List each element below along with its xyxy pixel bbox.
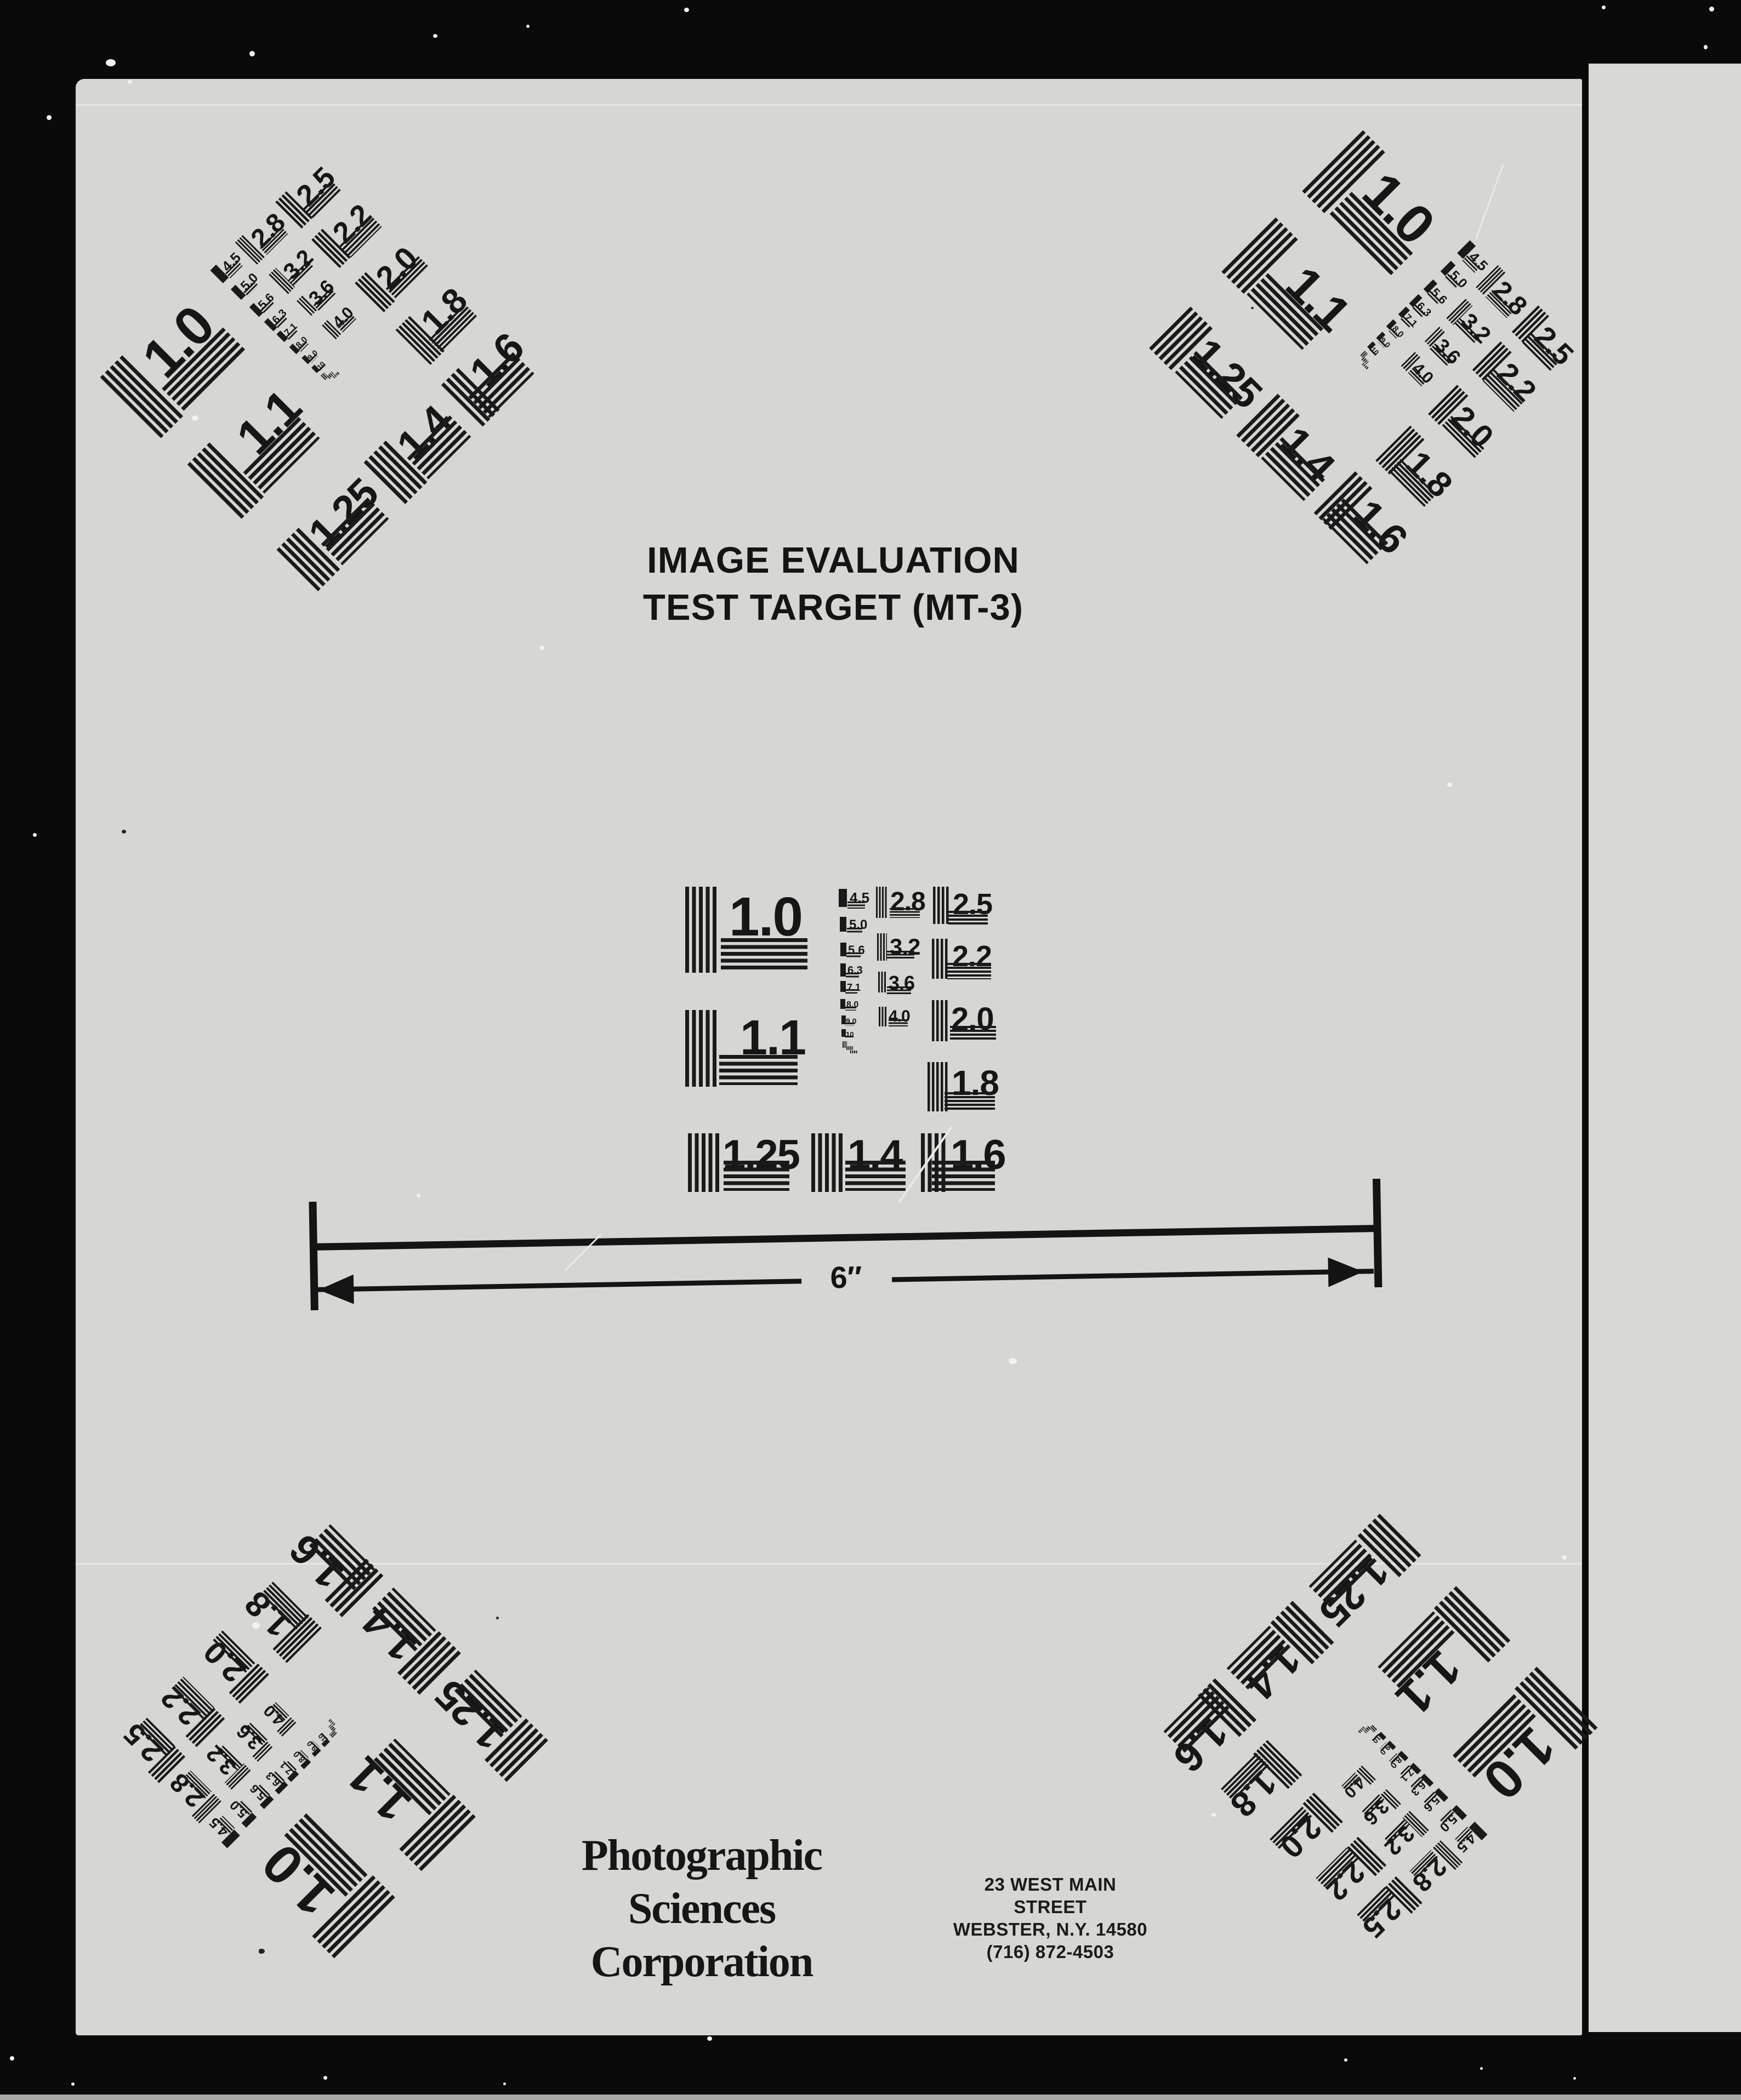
bar-pattern-horizontal — [847, 928, 862, 934]
test-target-center: 1.0 1.1 1.25 1.4 1.6 2.5 2.2 2.0 1.8 2.8… — [685, 885, 998, 1192]
company-name: Photographic Sciences Corporation — [559, 1829, 844, 1989]
scan-speck — [503, 2082, 506, 2085]
address-line-2: WEBSTER, N.Y. 14580 — [949, 1918, 1151, 1941]
scanner-edge — [0, 2095, 1741, 2100]
bar-pattern-block — [846, 1046, 853, 1050]
scale-top-line — [317, 1225, 1375, 1251]
scan-speck — [1211, 1813, 1216, 1817]
title-line-1: IMAGE EVALUATION — [630, 537, 1036, 584]
bar-pattern-vertical — [933, 887, 949, 924]
bar-pattern-horizontal — [845, 1007, 856, 1011]
scan-speck — [1009, 1358, 1017, 1364]
scan-speck — [684, 8, 689, 12]
arrowhead-right-icon — [1328, 1257, 1363, 1287]
dimension-line-right — [892, 1269, 1374, 1282]
bar-pattern-vertical — [685, 887, 719, 973]
scan-speck — [1480, 2067, 1483, 2070]
bar-pattern-horizontal — [889, 1019, 908, 1026]
bar-pattern-horizontal — [721, 938, 807, 971]
scan-speck — [33, 833, 37, 837]
scan-speck — [1447, 783, 1452, 787]
scanned-page: { "document": { "title_line1": "IMAGE EV… — [0, 0, 1741, 2100]
bar-pattern-vertical — [932, 1000, 949, 1041]
scan-speck — [252, 1622, 260, 1629]
scan-speck — [526, 25, 530, 28]
bar-pattern-horizontal — [846, 952, 861, 958]
scan-speck — [1573, 2077, 1576, 2080]
scan-speck — [106, 59, 116, 66]
scan-speck — [71, 2082, 75, 2086]
company-line-3: Corporation — [559, 1936, 844, 1989]
bar-pattern-horizontal — [948, 911, 988, 925]
company-line-2: Sciences — [559, 1882, 844, 1936]
scan-speck — [1562, 1555, 1567, 1560]
scan-speck — [259, 1949, 265, 1954]
bar-pattern-vertical — [685, 1010, 718, 1087]
scan-speck — [496, 1617, 499, 1619]
bar-pattern-horizontal — [719, 1055, 798, 1085]
scale-end-tick-left — [309, 1202, 318, 1310]
bar-pattern-horizontal — [724, 1161, 789, 1191]
scan-speck — [433, 34, 437, 38]
bar-pattern-block — [840, 917, 846, 932]
bar-pattern-horizontal — [945, 1092, 995, 1111]
scan-speck — [417, 1194, 420, 1197]
company-line-1: Photographic — [559, 1829, 844, 1882]
resolution-label: 1.0 — [729, 889, 802, 944]
bar-pattern-horizontal — [887, 986, 911, 995]
bar-pattern-block — [850, 1051, 858, 1053]
bar-pattern-horizontal — [947, 963, 991, 979]
title-line-2: TEST TARGET (MT-3) — [630, 584, 1036, 631]
bar-pattern-horizontal — [887, 951, 914, 960]
scan-speck — [1602, 5, 1606, 9]
dimension-line-left — [317, 1279, 801, 1292]
scan-speck — [707, 2036, 712, 2041]
bar-pattern-block — [839, 889, 847, 907]
bar-pattern-horizontal — [845, 1023, 855, 1026]
scale-bar: 6″ — [306, 1179, 1383, 1315]
bar-pattern-vertical — [876, 887, 887, 918]
scan-speck — [1344, 2058, 1347, 2062]
bar-pattern-horizontal — [890, 908, 920, 918]
bar-pattern-block — [840, 943, 846, 956]
scan-speck — [323, 2076, 327, 2080]
scan-speck — [128, 80, 132, 84]
address-line-3: (716) 872-4503 — [949, 1941, 1151, 1963]
scan-speck — [249, 51, 255, 56]
bar-pattern-block — [333, 371, 340, 378]
address-line-1: 23 WEST MAIN STREET — [949, 1873, 1151, 1918]
bar-pattern-horizontal — [950, 1026, 996, 1041]
company-address: 23 WEST MAIN STREET WEBSTER, N.Y. 14580 … — [949, 1873, 1151, 1963]
bar-pattern-vertical — [877, 933, 887, 961]
scan-streak — [76, 104, 1582, 106]
scan-speck — [47, 115, 52, 120]
scan-speck — [10, 2056, 14, 2061]
scale-end-tick-right — [1373, 1179, 1382, 1287]
scan-speck — [540, 646, 544, 650]
scan-speck — [122, 830, 126, 834]
bar-pattern-horizontal — [847, 901, 865, 909]
scan-speck — [192, 415, 198, 421]
bar-pattern-horizontal — [845, 1036, 854, 1038]
scan-speck — [1709, 7, 1714, 12]
bar-pattern-horizontal — [845, 1161, 906, 1191]
bar-pattern-vertical — [878, 972, 887, 992]
bar-pattern-vertical — [688, 1133, 721, 1192]
bar-pattern-horizontal — [846, 973, 859, 978]
scan-speck — [1704, 45, 1708, 49]
page-title: IMAGE EVALUATION TEST TARGET (MT-3) — [630, 537, 1036, 631]
bar-pattern-vertical — [811, 1133, 843, 1192]
arrowhead-left-icon — [318, 1275, 354, 1305]
bar-pattern-block — [840, 999, 845, 1009]
bar-pattern-block — [1363, 1726, 1370, 1733]
scale-length-label: 6″ — [800, 1259, 891, 1296]
scan-speck — [1251, 307, 1254, 309]
bar-pattern-block — [840, 963, 846, 977]
film-edge-strip — [1589, 64, 1741, 2032]
bar-pattern-horizontal — [845, 989, 857, 994]
bar-pattern-vertical — [879, 1007, 887, 1026]
